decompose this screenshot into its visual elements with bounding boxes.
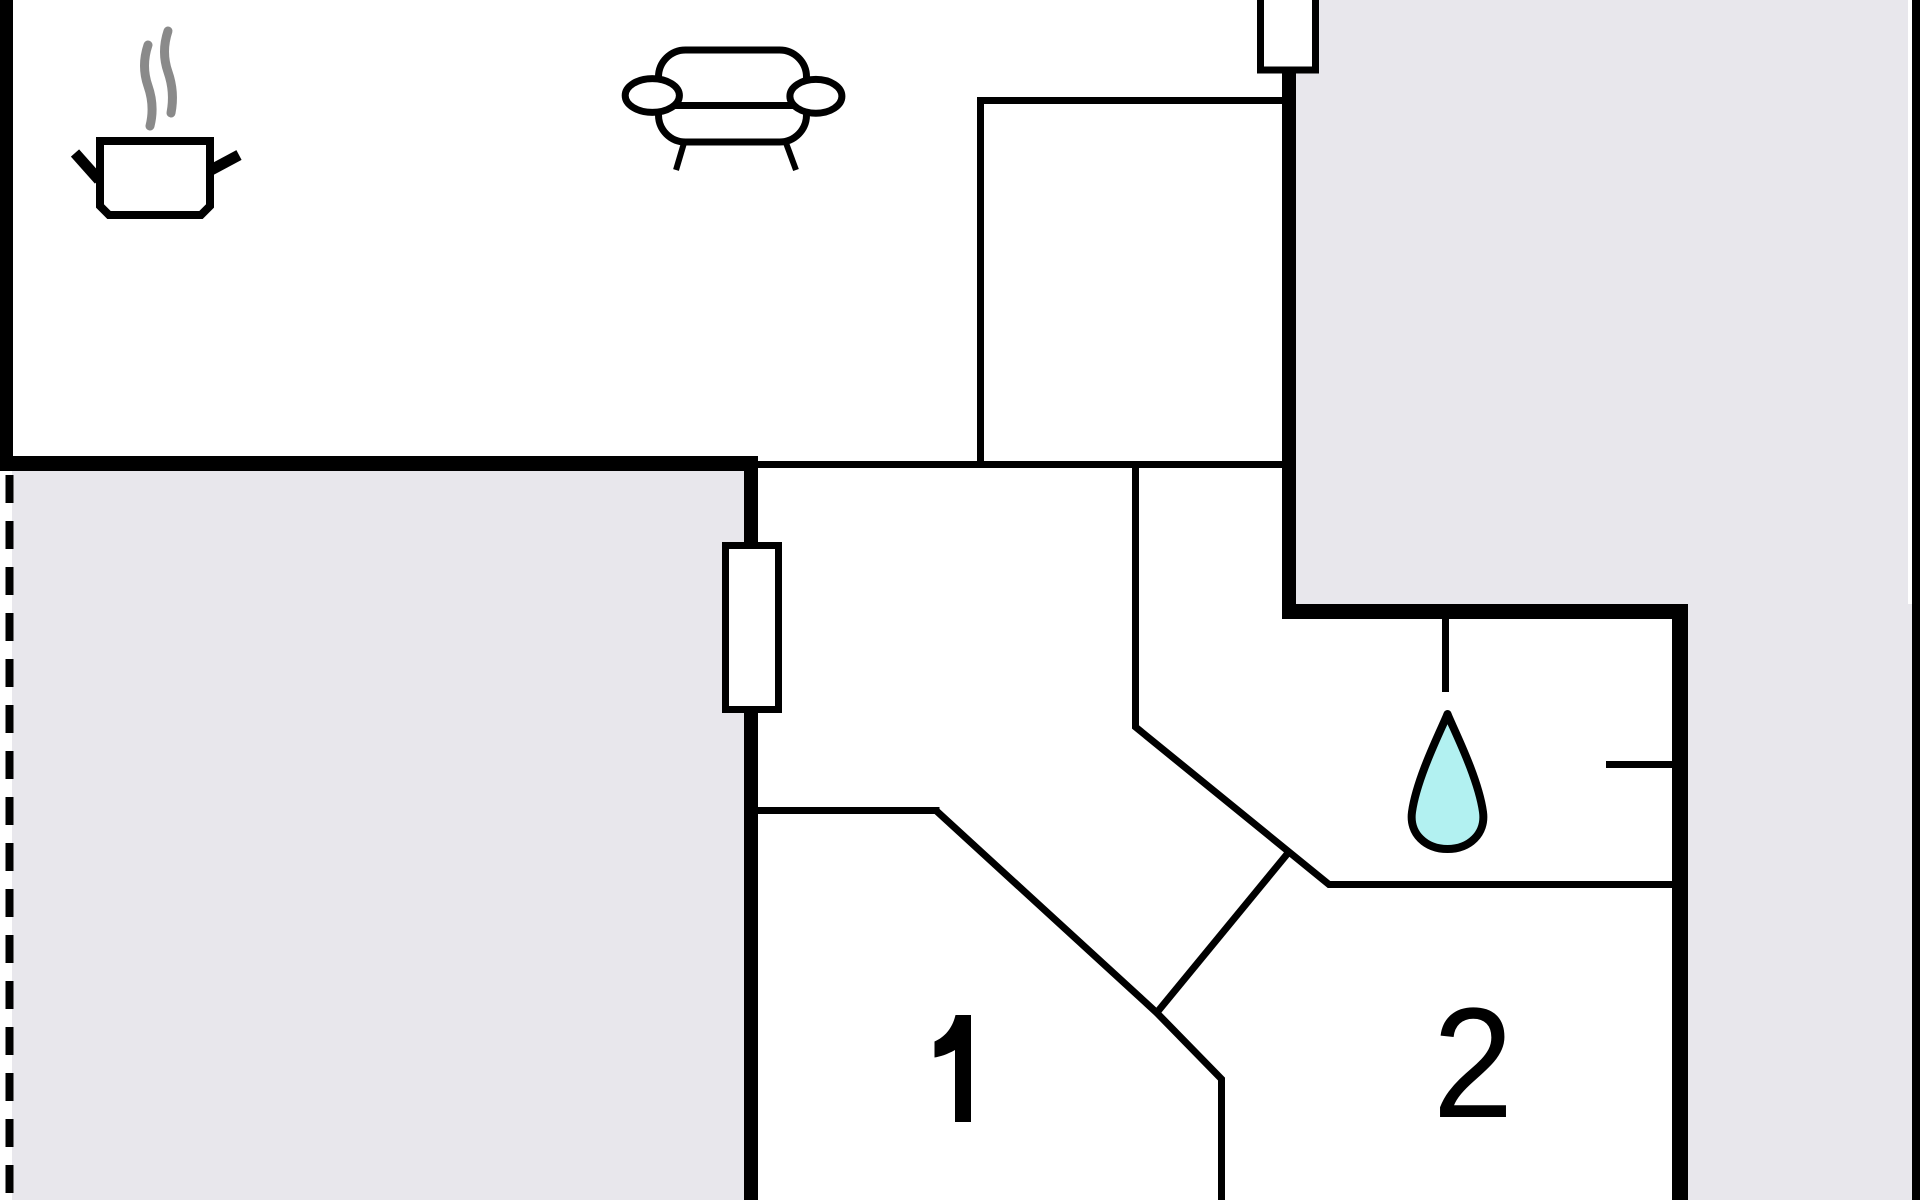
svg-text:2: 2 [1433, 975, 1514, 1151]
